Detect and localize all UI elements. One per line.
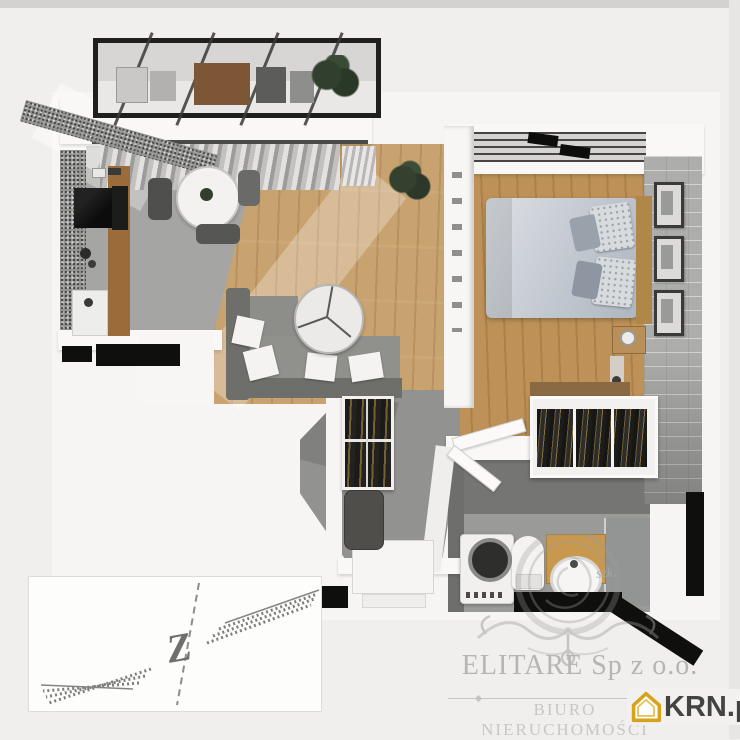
- kitchen-jar: [108, 168, 121, 175]
- cut-wall-black: [62, 346, 92, 362]
- balcony-chair: [116, 67, 148, 103]
- living-room-wall-step: [138, 332, 214, 404]
- wall-shelf-decor: [452, 172, 462, 332]
- duvet-fold: [486, 198, 512, 318]
- watermark-script-fragment: szk.: [595, 565, 617, 582]
- picture-art: [661, 245, 673, 269]
- agency-name-watermark: ELITARE Sp z o.o.: [452, 650, 708, 682]
- sofa-backrest: [248, 378, 402, 398]
- wardrobe-divider: [366, 399, 368, 487]
- picture-art: [661, 191, 673, 215]
- agency-ornament-watermark: [468, 516, 668, 671]
- balcony-plant: [310, 55, 366, 105]
- krn-portal-logo: KRN.pl: [627, 689, 740, 725]
- picture-art: [661, 299, 673, 323]
- page-right-border: [729, 0, 740, 739]
- kitchen-oven: [112, 186, 128, 230]
- balcony-chair: [256, 67, 286, 103]
- entry-step: [362, 594, 426, 608]
- curtain: [342, 146, 376, 186]
- dining-chair: [196, 224, 240, 244]
- sofa-pillow: [305, 352, 338, 381]
- dining-chair: [148, 178, 172, 220]
- krn-portal-label: KRN.pl: [664, 691, 740, 724]
- kitchen-faucet: [84, 298, 93, 307]
- picture-frame: [654, 182, 684, 228]
- balcony-table: [194, 63, 250, 105]
- hallway-wardrobe: [342, 396, 394, 490]
- bedside-lamp: [620, 330, 636, 346]
- sofa-pillow: [348, 352, 384, 383]
- bed-headboard: [636, 196, 652, 324]
- living-room-plant: [386, 160, 434, 208]
- bedroom-wardrobe: [530, 396, 658, 478]
- kitchen-cooktop: [74, 188, 112, 228]
- picture-frame: [654, 290, 684, 336]
- balcony: [93, 38, 381, 118]
- compass-drawing: Z: [29, 577, 321, 711]
- hallway-cabinet: [344, 490, 384, 550]
- hallway-left-wall: [326, 396, 342, 564]
- page-top-border: [0, 0, 740, 8]
- dining-chair: [238, 170, 260, 206]
- cut-wall-black: [686, 492, 704, 596]
- kitchen-sink-item: [80, 248, 91, 259]
- wardrobe-shelf: [345, 439, 391, 442]
- table-plant: [200, 188, 213, 201]
- kitchen-sink: [72, 290, 108, 336]
- wardrobe-clothes: [537, 409, 647, 467]
- kitchen-sink-item: [88, 260, 96, 268]
- compass-north-indicator: Z: [28, 576, 322, 712]
- cut-wall-black: [96, 344, 180, 366]
- gold-house-icon: [630, 690, 662, 724]
- wardrobe-divider: [611, 409, 614, 467]
- picture-frame: [654, 236, 684, 282]
- wardrobe-divider: [573, 409, 576, 467]
- sofa-pillow: [231, 315, 264, 348]
- balcony-chair: [150, 71, 176, 101]
- kitchen-jar: [92, 168, 106, 178]
